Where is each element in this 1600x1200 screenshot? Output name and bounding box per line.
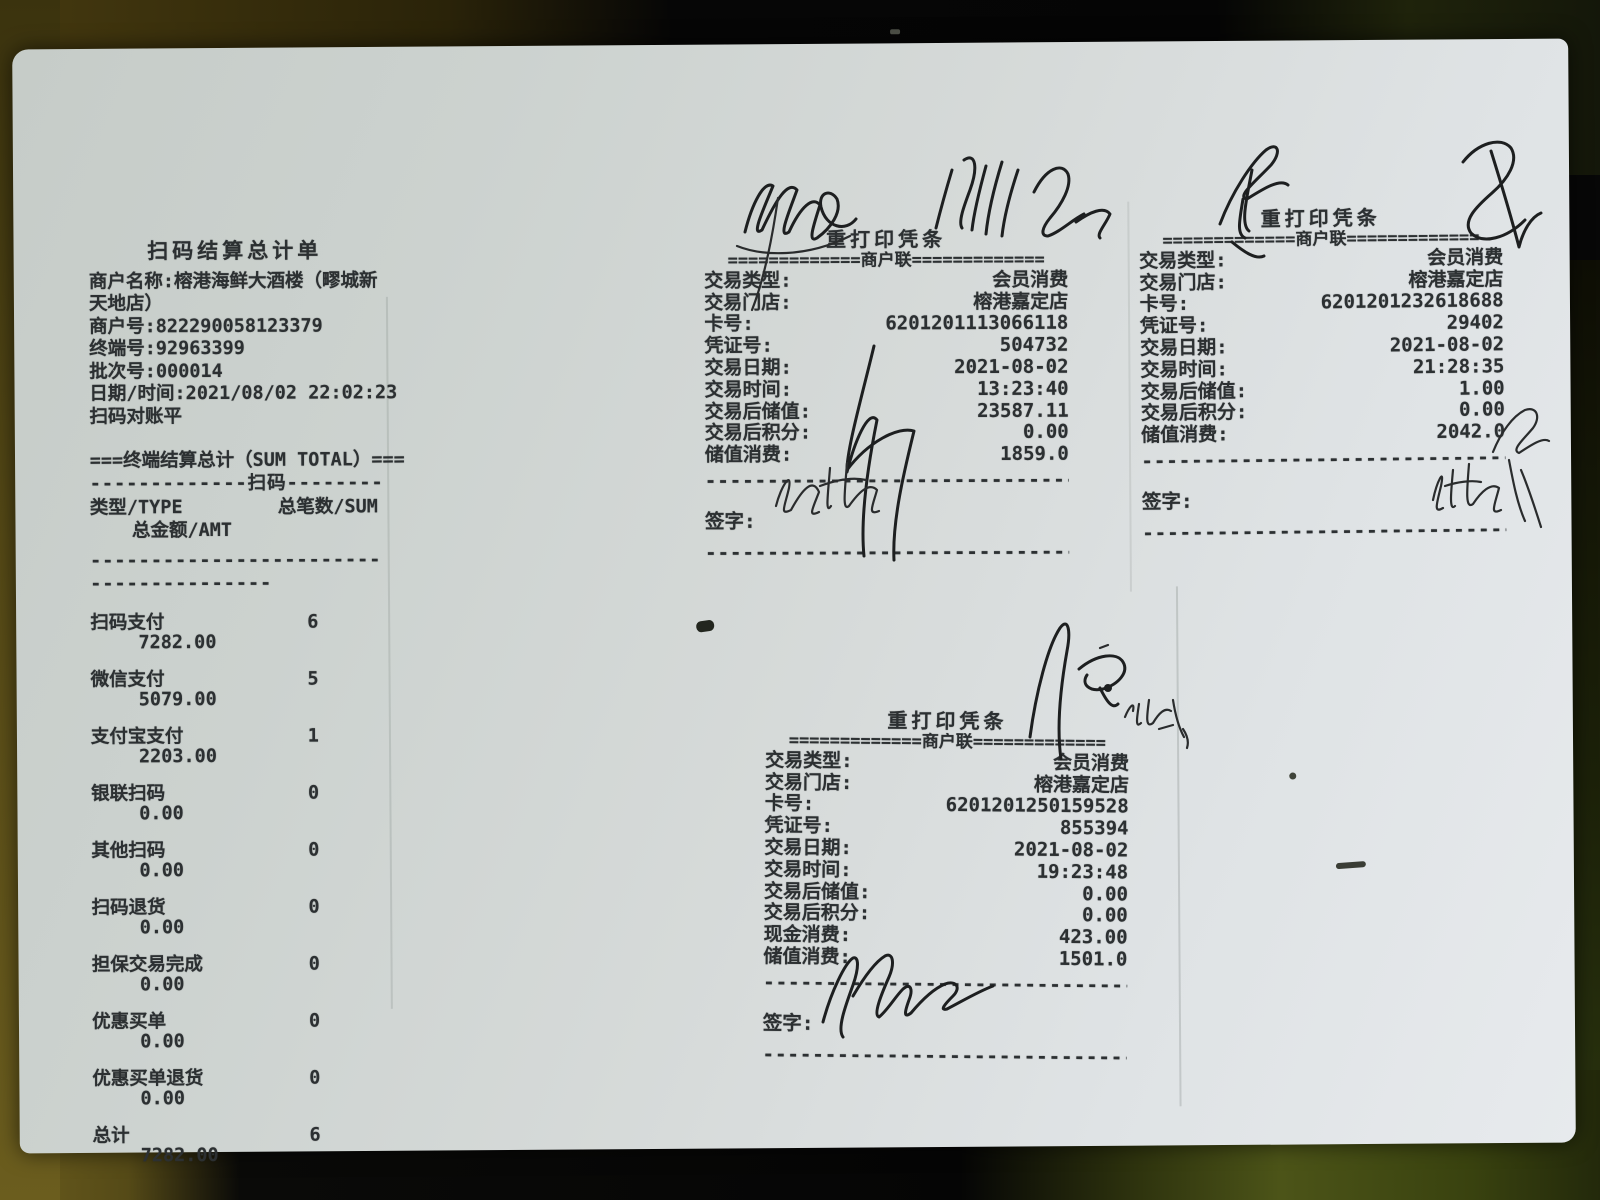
- row-count: 1: [308, 727, 319, 747]
- row-value: 2021-08-02: [1014, 840, 1129, 863]
- row-label: 交易后储值:: [1141, 381, 1248, 404]
- voucher-row: 卡号: 6201201113066118: [704, 313, 1068, 336]
- row-count: 0: [308, 784, 319, 804]
- row-amount: 7282.00: [93, 1145, 385, 1166]
- summary-header-lines: 商户名称:榕港海鲜大酒楼（疁城新天地店）商户号:822290058123379终…: [89, 270, 382, 429]
- voucher-title: 重打印凭条: [704, 229, 1068, 252]
- row-count: 5: [307, 670, 318, 690]
- summary-row: 总计 6 7282.00: [93, 1125, 385, 1165]
- row-value: 会员消费: [1053, 753, 1129, 775]
- row-label: 交易后储值:: [764, 881, 871, 904]
- summary-row: 扫码支付 6 7282.00: [90, 612, 382, 652]
- row-label: 卡号:: [1140, 294, 1190, 316]
- row-amount: 0.00: [91, 803, 383, 824]
- row-label: 凭证号:: [1140, 316, 1209, 339]
- summary-header-line: 日期/时间:2021/08/02 22:02:23: [89, 382, 381, 406]
- row-label: 交易类型:: [704, 270, 792, 292]
- row-amount: 2203.00: [91, 746, 383, 767]
- row-label: 扫码支付: [90, 613, 164, 633]
- row-amount: 0.00: [92, 917, 384, 938]
- row-label: 交易类型:: [1139, 250, 1227, 273]
- row-label: 卡号:: [765, 794, 815, 816]
- voucher-rows: 交易类型: 会员消费 交易门店: 榕港嘉定店 卡号: 6201201113066…: [704, 270, 1069, 467]
- row-value: 0.00: [1082, 906, 1128, 928]
- row-value: 会员消费: [1427, 247, 1503, 270]
- summary-row: 担保交易完成 0 0.00: [92, 954, 384, 994]
- row-count: 0: [308, 841, 319, 861]
- row-label: 微信支付: [91, 670, 165, 690]
- summary-header-line: 批次号:000014: [89, 360, 381, 384]
- photo-scene: 扫码结算总计单 商户名称:榕港海鲜大酒楼（疁城新天地店）商户号:82229005…: [0, 0, 1600, 1200]
- row-value: 6201201113066118: [885, 313, 1068, 335]
- signature-line: 签字:: [763, 990, 1127, 1043]
- summary-header-line: 商户名称:榕港海鲜大酒楼（疁城新: [89, 270, 381, 294]
- row-value: 6201201250159528: [946, 795, 1129, 818]
- row-count: 0: [309, 955, 320, 975]
- row-label: 交易后储值:: [705, 401, 812, 423]
- row-label: 现金消费:: [764, 925, 852, 948]
- row-value: 1859.0: [1000, 444, 1069, 466]
- row-amount: 7282.00: [90, 632, 382, 653]
- signature-line: 签字:: [705, 488, 1069, 539]
- voucher-rows: 交易类型: 会员消费 交易门店: 榕港嘉定店 卡号: 6201201232618…: [1139, 247, 1505, 447]
- row-value: 2021-08-02: [1390, 334, 1505, 357]
- voucher-receipt-bottom: 重打印凭条 =============商户联============= 交易类型…: [763, 709, 1130, 1065]
- merchant-copy-divider: =============商户联=============: [704, 251, 1068, 271]
- row-count: 6: [307, 613, 318, 633]
- voucher-row: 交易后积分: 0.00: [705, 422, 1069, 445]
- row-count: 0: [309, 1069, 320, 1089]
- row-label: 交易时间:: [705, 379, 793, 401]
- row-value: 21:28:35: [1413, 356, 1505, 379]
- row-label: 交易门店:: [765, 772, 853, 795]
- row-label: 银联扫码: [91, 784, 165, 804]
- ink-speck: [890, 29, 900, 34]
- row-label: 总计: [93, 1126, 130, 1146]
- row-count: 6: [309, 1126, 320, 1146]
- row-value: 会员消费: [992, 270, 1068, 292]
- summary-row: 银联扫码 0 0.00: [91, 783, 383, 823]
- summary-row: 扫码退货 0 0.00: [92, 897, 384, 937]
- row-value: 2021-08-02: [954, 357, 1068, 379]
- row-label: 储值消费:: [1141, 425, 1229, 448]
- voucher-row: 交易门店: 榕港嘉定店: [704, 291, 1068, 314]
- voucher-receipt-middle: 重打印凭条 =============商户联============= 交易类型…: [704, 229, 1069, 561]
- row-label: 优惠买单退货: [92, 1069, 203, 1089]
- voucher-row: 交易后储值: 23587.11: [705, 400, 1069, 423]
- paper-crease: [1127, 202, 1132, 592]
- ink-speck: [1289, 772, 1296, 779]
- divider: ------------------: [90, 572, 271, 595]
- row-value: 榕港嘉定店: [1408, 269, 1503, 292]
- divider: --------------------------------: [1142, 521, 1506, 541]
- voucher-row: 凭证号: 504732: [704, 335, 1068, 358]
- row-value: 29402: [1447, 312, 1504, 334]
- summary-title: 扫码结算总计单: [89, 239, 381, 263]
- row-label: 优惠买单: [92, 1012, 166, 1032]
- row-count: 0: [308, 898, 319, 918]
- row-count: 0: [309, 1012, 320, 1032]
- paper-sheet: 扫码结算总计单 商户名称:榕港海鲜大酒楼（疁城新天地店）商户号:82229005…: [12, 39, 1576, 1154]
- row-label: 交易门店:: [704, 292, 792, 314]
- row-label: 支付宝支付: [91, 727, 184, 747]
- ink-speck: [1336, 861, 1366, 869]
- row-label: 其他扫码: [91, 841, 165, 861]
- row-label: 凭证号:: [704, 336, 773, 358]
- voucher-receipt-right: 重打印凭条 =============商户联============= 交易类型…: [1139, 206, 1507, 541]
- row-amount: 5079.00: [91, 689, 383, 710]
- summary-header-line: 扫码对账平: [89, 405, 381, 429]
- summary-header-line: 终端号:92963399: [89, 337, 381, 361]
- row-value: 13:23:40: [977, 378, 1069, 400]
- row-value: 1.00: [1459, 378, 1505, 400]
- col-type-header: 类型/TYPE: [90, 497, 183, 520]
- row-label: 交易时间:: [764, 859, 852, 882]
- row-label: 担保交易完成: [92, 955, 203, 975]
- row-label: 交易日期:: [1140, 337, 1228, 360]
- col-amount-header: 总金额/AMT: [90, 519, 382, 543]
- voucher-row: 交易门店: 榕港嘉定店: [765, 772, 1129, 797]
- signature-line: 签字:: [1142, 465, 1507, 519]
- summary-rows: 扫码支付 6 7282.00 微信支付 5 5079.00: [90, 612, 384, 1165]
- summary-receipt: 扫码结算总计单 商户名称:榕港海鲜大酒楼（疁城新天地店）商户号:82229005…: [89, 239, 385, 1165]
- row-label: 交易门店:: [1139, 272, 1227, 295]
- row-label: 扫码退货: [92, 898, 166, 918]
- voucher-row: 储值消费: 2042.0: [1141, 421, 1505, 447]
- row-amount: 0.00: [92, 1031, 384, 1052]
- voucher-row: 交易时间: 21:28:35: [1140, 356, 1504, 382]
- row-value: 423.00: [1059, 927, 1128, 949]
- summary-section-title: ===终端结算总计（SUM TOTAL）===: [90, 449, 382, 473]
- row-value: 0.00: [1082, 884, 1128, 906]
- summary-header-line: 商户号:822290058123379: [89, 315, 381, 339]
- row-label: 交易日期:: [704, 358, 792, 380]
- row-value: 榕港嘉定店: [973, 291, 1068, 313]
- row-label: 凭证号:: [764, 816, 833, 838]
- row-label: 交易时间:: [1140, 359, 1228, 382]
- row-amount: 0.00: [91, 860, 383, 881]
- row-value: 2042.0: [1436, 421, 1505, 444]
- row-value: 1501.0: [1059, 949, 1128, 971]
- voucher-title: 重打印凭条: [765, 709, 1129, 734]
- row-value: 0.00: [1459, 400, 1505, 422]
- divider: --------------------------------: [763, 974, 1127, 993]
- row-value: 504732: [1000, 335, 1069, 357]
- col-count-header: 总笔数/SUM: [278, 496, 378, 519]
- row-value: 23587.11: [977, 400, 1069, 422]
- summary-header-line: 天地店）: [89, 292, 381, 316]
- row-amount: 0.00: [92, 1088, 384, 1109]
- paper-crease: [1176, 586, 1182, 1106]
- row-label: 储值消费:: [705, 445, 793, 467]
- voucher-row: 储值消费: 1501.0: [763, 946, 1127, 971]
- row-label: 储值消费:: [763, 946, 851, 969]
- row-label: 卡号:: [704, 314, 754, 336]
- divider: ---------------------------: [90, 549, 382, 573]
- summary-row: 微信支付 5 5079.00: [91, 669, 383, 709]
- row-value: 855394: [1060, 818, 1129, 840]
- voucher-row: 交易日期: 2021-08-02: [704, 357, 1068, 380]
- row-label: 交易后积分:: [1141, 403, 1248, 426]
- summary-row: 优惠买单 0 0.00: [92, 1011, 384, 1051]
- row-label: 交易类型:: [765, 750, 853, 773]
- row-value: 19:23:48: [1037, 862, 1129, 885]
- divider: --------------------------------: [705, 472, 1069, 489]
- scan-divider: -------------扫码--------------: [90, 472, 382, 496]
- voucher-row: 交易类型: 会员消费: [704, 270, 1068, 293]
- row-label: 交易日期:: [764, 837, 852, 860]
- voucher-rows: 交易类型: 会员消费 交易门店: 榕港嘉定店 卡号: 6201201250159…: [763, 750, 1129, 971]
- divider: --------------------------------: [763, 1046, 1127, 1065]
- row-label: 交易后积分:: [764, 903, 871, 926]
- summary-row: 优惠买单退货 0 0.00: [92, 1068, 384, 1108]
- summary-row: 其他扫码 0 0.00: [91, 840, 383, 880]
- voucher-row: 储值消费: 1859.0: [705, 444, 1069, 467]
- divider: --------------------------------: [705, 543, 1069, 560]
- voucher-row: 交易时间: 13:23:40: [705, 378, 1069, 401]
- ink-speck: [696, 619, 715, 633]
- row-value: 榕港嘉定店: [1034, 774, 1129, 797]
- row-label: 交易后积分:: [705, 423, 812, 445]
- row-value: 0.00: [1023, 422, 1069, 444]
- row-amount: 0.00: [92, 974, 384, 995]
- paper-crease: [386, 297, 393, 1009]
- summary-row: 支付宝支付 1 2203.00: [91, 726, 383, 766]
